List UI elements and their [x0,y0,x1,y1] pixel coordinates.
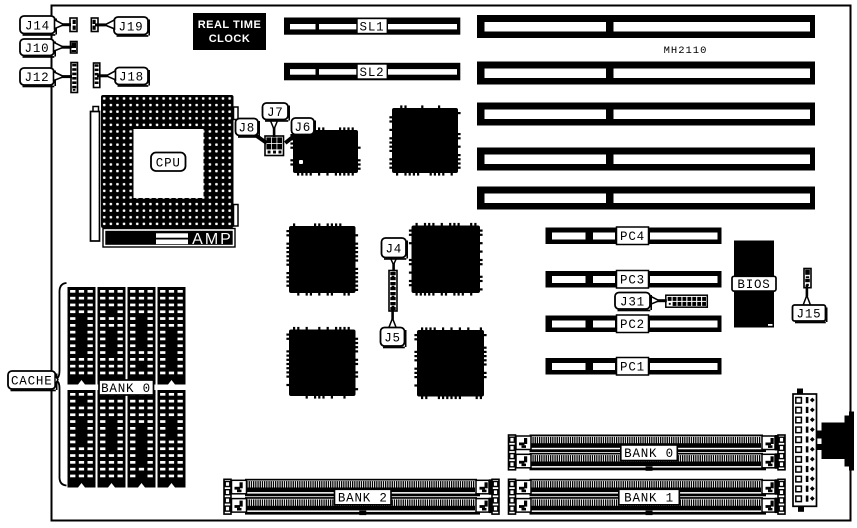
svg-text:J8: J8 [238,122,255,136]
svg-text:J5: J5 [384,331,401,345]
svg-text:PC3: PC3 [620,274,645,288]
svg-text:PC4: PC4 [620,230,645,244]
svg-text:AMP: AMP [192,231,233,248]
svg-text:J7: J7 [267,106,284,120]
svg-text:J4: J4 [385,242,402,256]
svg-text:MH2110: MH2110 [664,45,708,57]
svg-text:J10: J10 [25,42,50,56]
svg-text:SL2: SL2 [360,66,385,80]
svg-text:J19: J19 [119,20,144,34]
svg-text:J14: J14 [25,19,50,33]
svg-text:J12: J12 [25,71,50,85]
svg-text:BIOS: BIOS [737,278,770,292]
svg-text:PC2: PC2 [620,318,645,332]
svg-text:BANK 2: BANK 2 [338,491,388,505]
svg-text:J31: J31 [620,295,645,309]
svg-text:CLOCK: CLOCK [209,33,251,45]
svg-text:SL1: SL1 [360,21,385,35]
svg-text:J15: J15 [797,308,822,322]
svg-text:PC1: PC1 [620,361,645,375]
svg-text:J18: J18 [119,71,144,85]
svg-text:REAL TIME: REAL TIME [198,19,262,31]
svg-text:CACHE: CACHE [11,375,53,389]
svg-text:BANK 0: BANK 0 [101,382,151,396]
svg-text:BANK 0: BANK 0 [624,447,674,461]
svg-text:J6: J6 [294,121,311,135]
svg-text:BANK 1: BANK 1 [624,491,674,505]
svg-text:CPU: CPU [156,156,181,170]
